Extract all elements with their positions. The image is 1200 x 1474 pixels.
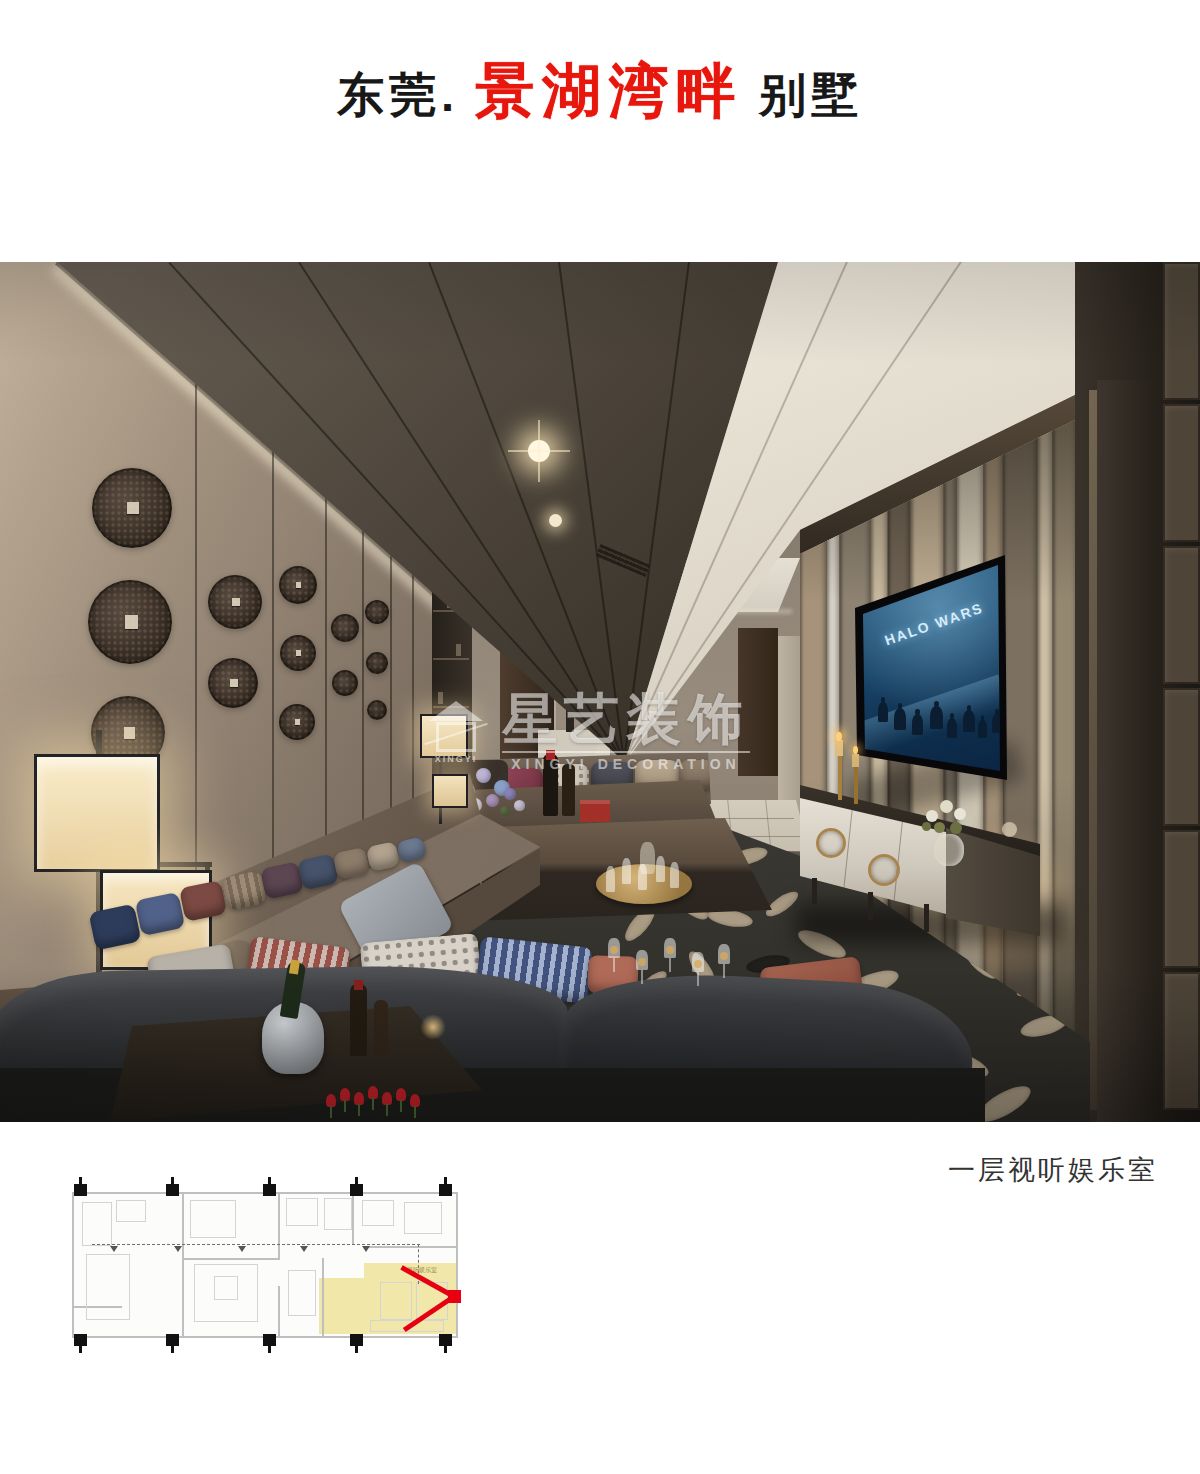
floor-plan: 视听娱乐室 [64, 1186, 466, 1354]
xingyi-logo-icon: XINGYI [424, 701, 488, 764]
plan-wall [322, 1258, 324, 1336]
plan-dashed-path [92, 1244, 420, 1245]
plan-column-stem [268, 1345, 271, 1353]
plan-column-stem [355, 1345, 358, 1353]
plan-furniture [362, 1200, 394, 1226]
plan-column-stem [444, 1177, 447, 1185]
plan-furniture [116, 1200, 146, 1222]
logo-body-icon [436, 722, 476, 752]
title-suffix: 别墅 [759, 64, 863, 127]
drink-gold [694, 960, 702, 968]
plan-furniture [324, 1198, 352, 1230]
plan-furniture [286, 1198, 318, 1226]
drink-gold [610, 946, 618, 954]
xingyi-watermark: XINGYI 星艺装饰 XINGYI DECORATION [424, 692, 750, 772]
plan-path-arrow [110, 1246, 118, 1252]
plan-column-stem [355, 1177, 358, 1185]
plan-path-arrow [362, 1246, 370, 1252]
plan-furniture [82, 1202, 112, 1246]
watermark-divider [502, 751, 750, 753]
plan-furniture [288, 1270, 316, 1316]
presentation-page: 东莞. 景湖湾畔 别墅 [0, 0, 1200, 1474]
plan-column-stem [79, 1345, 82, 1353]
watermark-brand-en: XINGYI DECORATION [502, 756, 750, 772]
plan-column-marker [350, 1184, 363, 1196]
plan-furniture [214, 1276, 238, 1300]
glass-stem [697, 972, 699, 986]
plan-path-arrow [238, 1246, 246, 1252]
watermark-text-block: 星艺装饰 XINGYI DECORATION [502, 692, 750, 772]
title-brand: 景湖湾畔 [475, 52, 743, 132]
logo-swoosh-icon [424, 722, 487, 744]
plan-column-marker [439, 1184, 452, 1196]
interior-rendering: HALO WARS [0, 262, 1200, 1122]
plan-wall [278, 1286, 280, 1336]
plan-column-stem [171, 1177, 174, 1185]
drink-gold [666, 946, 674, 954]
photo-caption: 一层视听娱乐室 [948, 1152, 1158, 1188]
plan-column-stem [79, 1177, 82, 1185]
plan-wall [352, 1194, 354, 1244]
plan-furniture [86, 1254, 130, 1320]
plan-column-marker [74, 1184, 87, 1196]
plan-furniture [190, 1200, 236, 1238]
plan-wall [278, 1194, 280, 1258]
glass-stem [669, 958, 671, 972]
plan-furniture [404, 1202, 442, 1234]
plan-furniture [380, 1282, 412, 1320]
plan-wall [366, 1246, 456, 1248]
drink-gold [638, 958, 646, 966]
glass-stem [613, 958, 615, 972]
watermark-logo-text: XINGYI [424, 754, 488, 764]
plan-wall [72, 1192, 74, 1338]
plan-wall [456, 1192, 458, 1338]
plan-wall [182, 1258, 280, 1260]
plan-column-stem [444, 1345, 447, 1353]
plan-path-arrow [300, 1246, 308, 1252]
glass-stem [641, 970, 643, 984]
plan-column-stem [268, 1177, 271, 1185]
glass-stem [723, 964, 725, 978]
logo-roof-icon [429, 701, 483, 721]
watermark-brand-cn: 星艺装饰 [502, 692, 750, 747]
title-city: 东莞. [337, 64, 459, 127]
page-title: 东莞. 景湖湾畔 别墅 [0, 52, 1200, 132]
plan-wall [182, 1194, 184, 1336]
plan-path-arrow [174, 1246, 182, 1252]
plan-column-marker [166, 1184, 179, 1196]
drink-gold [720, 952, 728, 960]
plan-column-marker [263, 1184, 276, 1196]
plan-column-stem [171, 1345, 174, 1353]
